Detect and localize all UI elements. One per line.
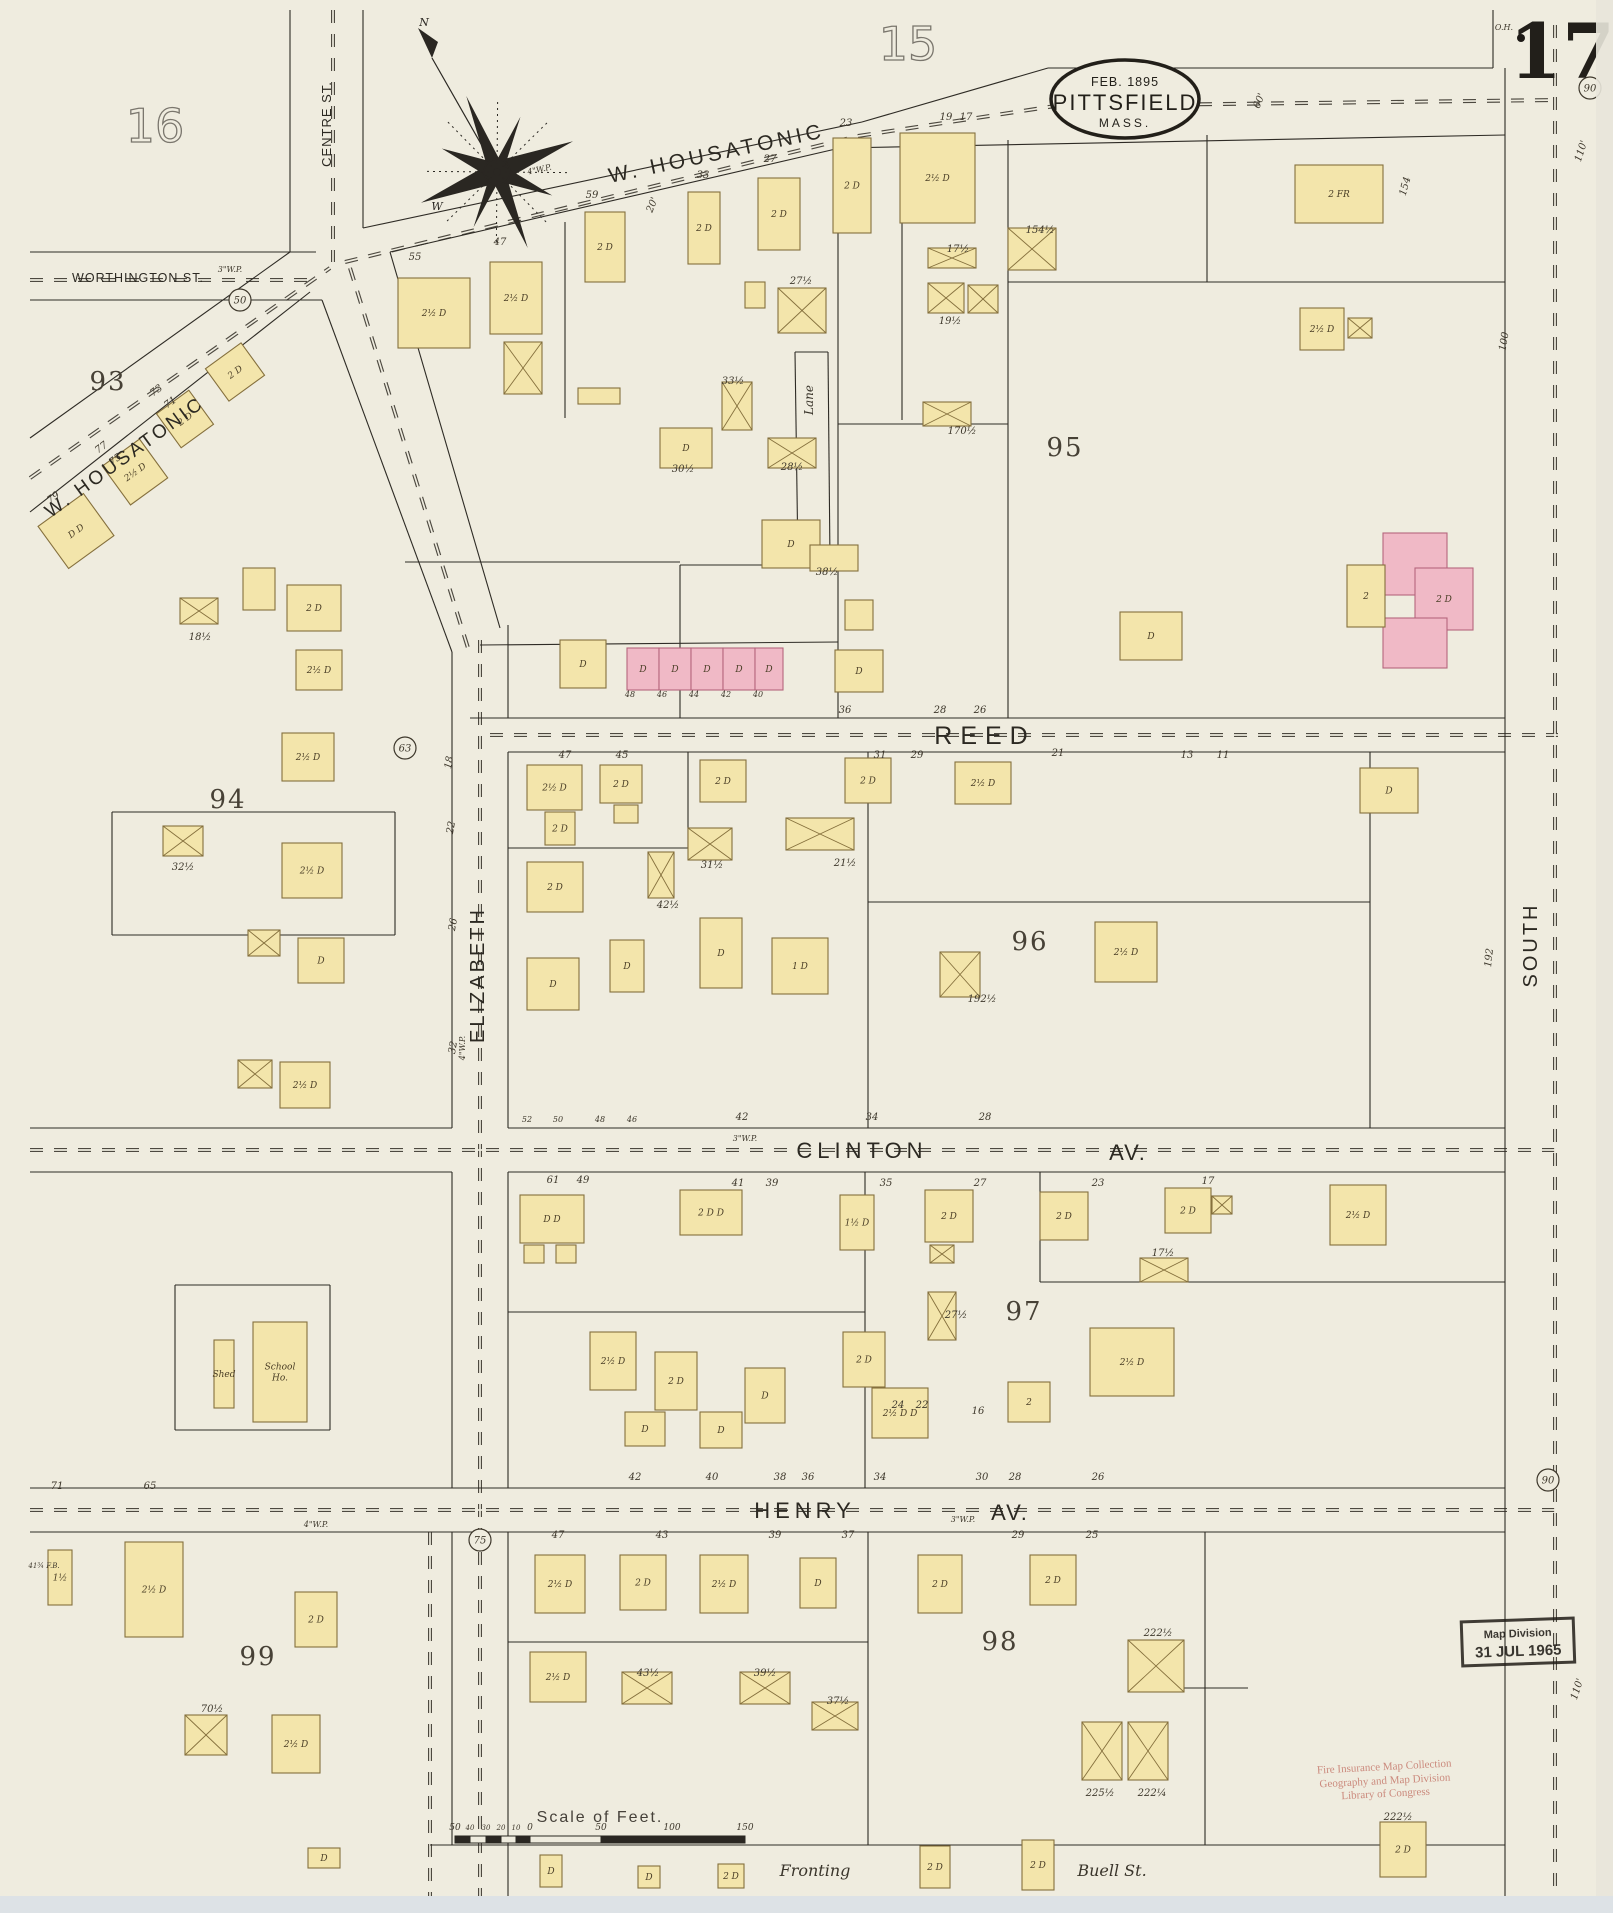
block-numbers-layer: 93 94 95 96 97 98 99	[89, 367, 1083, 1672]
frame-building	[928, 283, 964, 313]
collection-stamp: Fire Insurance Map Collection Geography …	[1317, 1757, 1454, 1803]
building-label: 2½ D	[283, 1739, 309, 1750]
frame-building: 2½ D	[490, 262, 542, 334]
scale-segment	[455, 1836, 470, 1843]
building-label: 2½ D	[141, 1585, 167, 1596]
map-annotation: 19	[940, 112, 953, 123]
frame-building	[1128, 1722, 1168, 1780]
frame-building	[845, 600, 873, 630]
frame-building: D	[308, 1848, 340, 1868]
street-label-henry: HENRY	[754, 1498, 856, 1523]
brick-building	[1383, 618, 1447, 668]
lot-line	[828, 352, 830, 562]
frame-building	[1212, 1196, 1232, 1214]
building-label: 2 D	[305, 604, 322, 614]
stamps-layer: Map Division 31 JUL 1965 Fire Insurance …	[1317, 1618, 1575, 1803]
building-label: 2½ D	[541, 783, 567, 794]
building-label: 2½ D	[970, 778, 996, 789]
street-label-clinton-av: AV.	[1109, 1140, 1147, 1165]
library-date-stamp: Map Division 31 JUL 1965	[1461, 1618, 1574, 1666]
building-label: D	[546, 1867, 554, 1877]
building-label: 2 D	[307, 1616, 324, 1626]
map-annotation: 22	[915, 1400, 929, 1411]
map-annotation: 50	[553, 1115, 563, 1124]
building-label: 2 D	[1055, 1212, 1072, 1222]
frame-building: D	[638, 1866, 660, 1888]
frame-building: 2	[1347, 565, 1385, 627]
frame-building: 2½ D	[1095, 922, 1157, 982]
frame-building: 2 D	[585, 212, 625, 282]
map-annotation: 29	[1011, 1530, 1025, 1541]
frame-building: D	[700, 918, 742, 988]
frame-building: Shed	[212, 1340, 235, 1408]
scale-tick-label: 40	[465, 1824, 475, 1832]
building-label: 2½ D	[924, 173, 950, 184]
street-label-centre: CENTRE ST.	[319, 81, 334, 167]
scan-edge-bottom	[0, 1896, 1613, 1913]
frame-building	[930, 1245, 954, 1263]
scale-bar-ticks: 5040302010050100150	[449, 1823, 754, 1833]
map-annotation: 40	[752, 690, 763, 699]
building-label: 2 D	[667, 1377, 684, 1387]
frame-building: 2 D	[843, 1332, 885, 1387]
building-label: D	[764, 665, 772, 675]
building-label: 2	[1025, 1398, 1032, 1408]
map-annotation: 42	[735, 1112, 749, 1123]
frame-building	[163, 826, 203, 856]
scale-tick-label: 0	[527, 1823, 533, 1833]
frame-building: 1½ D	[840, 1195, 874, 1250]
map-annotation: 65	[144, 1481, 157, 1492]
map-annotation: 4"W.P.	[303, 1520, 328, 1529]
map-annotation: 32½	[172, 862, 194, 873]
frame-building: D	[835, 650, 883, 692]
frame-building: D	[610, 940, 644, 992]
map-annotation: 31	[874, 750, 887, 761]
building-label: 2 D	[596, 243, 613, 253]
map-annotation: 28	[933, 705, 947, 716]
frame-building: 2½ D	[1090, 1328, 1174, 1396]
map-annotation: 31½	[701, 860, 723, 871]
map-annotation: 42	[628, 1472, 642, 1483]
building-label: 2½ D	[295, 752, 321, 763]
map-annotation: 28	[1008, 1472, 1022, 1483]
map-annotation: 33½	[722, 376, 744, 387]
frame-building: 2 D	[688, 192, 720, 264]
title-city: PITTSFIELD	[1053, 90, 1198, 115]
scale-segment	[501, 1836, 516, 1843]
map-annotation: 110'	[1573, 139, 1590, 163]
map-annotation: 28½	[780, 462, 803, 473]
map-annotation: 17½	[947, 244, 969, 255]
frame-building: D	[1120, 612, 1182, 660]
scan-edge-right	[1596, 0, 1613, 1913]
building-label: 2 D	[1179, 1207, 1196, 1217]
map-annotation: 40	[705, 1472, 719, 1483]
map-annotation: 25	[1085, 1530, 1099, 1541]
frame-building: 2½ D	[900, 133, 975, 223]
map-annotation: 77	[93, 439, 110, 456]
street-label-elizabeth: ELIZABETH	[467, 907, 489, 1043]
block-number-98: 98	[981, 1627, 1018, 1657]
building-label: D	[760, 1392, 768, 1402]
frame-building	[786, 818, 854, 850]
frame-building: 2½ D	[296, 650, 342, 690]
frame-building: 2½ D	[280, 1062, 330, 1108]
brick-building: D	[691, 648, 723, 690]
building-label: D	[813, 1579, 821, 1589]
building-label: D	[734, 665, 742, 675]
building-label: D	[578, 660, 586, 670]
building-label: 2 D	[1394, 1846, 1411, 1856]
frame-building: D	[625, 1412, 665, 1446]
map-annotation: 41¾ F.B.	[27, 1562, 59, 1570]
scale-tick-label: 150	[736, 1823, 753, 1833]
block-number-95: 95	[1046, 433, 1083, 463]
building-label: 2½ D	[1119, 1357, 1145, 1368]
building-label: 2 D D	[697, 1209, 724, 1219]
map-annotation: 46	[656, 690, 667, 699]
frame-building: 2 D	[527, 862, 583, 912]
lot-lines	[30, 10, 1505, 1913]
frame-building: 2 FR	[1295, 165, 1383, 223]
map-annotation: 154	[1398, 176, 1414, 197]
frame-building: 2 D	[205, 343, 264, 401]
frame-building	[1140, 1258, 1188, 1282]
map-annotation: 192	[1483, 948, 1496, 968]
building-label: 2 D	[843, 182, 860, 192]
scale-tick-label: 100	[663, 1823, 680, 1833]
building-label: 2 D	[859, 777, 876, 787]
building-label: 2	[1362, 592, 1369, 602]
map-annotation: 24	[891, 1400, 905, 1411]
building-label: D	[316, 957, 324, 967]
frame-building: 2½ D	[527, 765, 582, 810]
block-number-99: 99	[239, 1642, 276, 1672]
map-annotation: 27½	[944, 1310, 967, 1321]
map-annotation: 43½	[636, 1668, 659, 1679]
map-annotation: 27½	[789, 276, 812, 287]
street-label-buell: Buell St.	[1076, 1861, 1146, 1880]
map-annotation: 30½	[672, 464, 694, 475]
scale-segment	[486, 1836, 501, 1843]
map-annotation: 3"W.P.	[218, 265, 242, 274]
building-label: 2½ D	[421, 308, 447, 319]
map-annotation: 44	[688, 690, 699, 699]
map-annotation: 43	[655, 1530, 669, 1541]
frame-building: 2 D	[700, 760, 746, 802]
building-label: 2½ D	[1345, 1210, 1371, 1221]
map-annotation: 42	[720, 690, 731, 699]
map-annotation: 170½	[948, 426, 977, 437]
map-annotation: 30	[976, 1472, 989, 1483]
map-annotation: 28	[978, 1112, 992, 1123]
building-label: 2 D	[695, 224, 712, 234]
frame-building: 2½ D	[272, 1715, 320, 1773]
compass-west-label: W	[431, 200, 444, 213]
building-label: 2 D	[634, 1579, 651, 1589]
brick-building: D	[723, 648, 755, 690]
map-annotation: 46	[626, 1115, 637, 1124]
buildings-layer: 2½ D2½ D2 DD2 D2 D2 DD2½ D2 FR2½ D2 D2DD…	[38, 133, 1473, 1890]
building-label: 1½ D	[845, 1218, 870, 1229]
frame-building	[1348, 318, 1372, 338]
street-label-clinton: CLINTON	[796, 1138, 927, 1163]
map-annotation: 18	[443, 755, 456, 769]
frame-building: 2 D	[655, 1352, 697, 1410]
map-annotation: 21	[1051, 748, 1065, 759]
scale-segment	[470, 1836, 486, 1843]
frame-building	[524, 1245, 544, 1263]
frame-building: 2½ D	[535, 1555, 585, 1613]
map-annotation: 21½	[833, 858, 856, 869]
map-annotation: 34	[874, 1472, 887, 1483]
building-label: D	[644, 1873, 652, 1883]
frame-building	[968, 285, 998, 313]
block-number-93: 93	[89, 367, 126, 397]
building-label: 2½ D	[600, 1356, 626, 1367]
street-width-disc: 75	[469, 1529, 491, 1551]
map-annotation: 38	[774, 1472, 787, 1483]
frame-building: 2 D	[295, 1592, 337, 1647]
map-annotation: 22	[445, 820, 458, 835]
building-label: D	[638, 665, 646, 675]
map-annotation: 60'	[1252, 92, 1268, 110]
frame-building: 2 D	[545, 812, 575, 845]
frame-building: 2 D D	[680, 1190, 742, 1235]
brick-building: D	[627, 648, 659, 690]
frame-building: 2½ D	[530, 1652, 586, 1702]
frame-building: 1½	[48, 1550, 72, 1605]
frame-building: 2 D	[620, 1555, 666, 1610]
map-annotation: 154½	[1026, 225, 1055, 236]
scale-tick-label: 50	[595, 1823, 607, 1833]
frame-building: D	[560, 640, 606, 688]
title-oval: FEB. 1895 PITTSFIELD MASS.	[1051, 60, 1199, 138]
map-annotation: 39½	[754, 1668, 776, 1679]
street-width-disc: 90	[1537, 1469, 1559, 1491]
frame-building: 2 D	[287, 585, 341, 631]
map-annotation: 27	[763, 154, 777, 165]
frame-building	[1128, 1640, 1184, 1692]
map-annotation: 41	[731, 1178, 745, 1189]
lot-line	[480, 642, 838, 645]
sheet-numbers-layer: 15 16 17	[126, 7, 1613, 153]
map-annotation: 34	[866, 1112, 879, 1123]
scale-segment	[601, 1836, 672, 1843]
lot-line	[862, 68, 1048, 122]
map-canvas: 2½ D2½ D2 DD2 D2 D2 DD2½ D2 FR2½ D2 D2DD…	[0, 0, 1613, 1913]
building-label: 2½ D	[545, 1672, 571, 1683]
sanborn-map-sheet: 2½ D2½ D2 DD2 D2 D2 DD2½ D2 FR2½ D2 D2DD…	[0, 0, 1613, 1913]
map-annotation: 23	[1091, 1178, 1105, 1189]
street-centerline-core	[858, 106, 1055, 136]
map-annotation: 18½	[189, 632, 211, 643]
label-fronting: Fronting	[779, 1861, 851, 1880]
building-label: 2½ D	[547, 1579, 573, 1590]
building-label: D	[702, 665, 710, 675]
map-annotation: 37	[842, 1530, 855, 1541]
building-label: 2½ D	[1113, 947, 1139, 958]
map-annotation: 16	[972, 1406, 985, 1417]
building-label: 2 D	[722, 1872, 739, 1882]
map-annotation: 42½	[656, 900, 679, 911]
frame-building	[722, 382, 752, 430]
building-label: 2 D	[714, 777, 731, 787]
map-annotation: 222½	[1143, 1628, 1173, 1639]
map-annotation: 222½	[1383, 1812, 1413, 1823]
frame-building: 2½ D	[700, 1555, 748, 1613]
frame-building	[923, 402, 971, 426]
adjacent-sheet-number-16: 16	[126, 99, 185, 153]
frame-building: 2½ D D	[872, 1388, 928, 1438]
map-annotation: 37½	[827, 1696, 849, 1707]
building-label: 2 D	[940, 1212, 957, 1222]
compass-star	[387, 62, 608, 283]
svg-text:50: 50	[234, 296, 247, 307]
building-label: 2 D	[1435, 595, 1452, 605]
frame-building: D	[1360, 768, 1418, 813]
frame-building: 2 D	[1030, 1555, 1076, 1605]
map-annotation: 23	[839, 118, 853, 129]
map-annotation: 45	[615, 750, 629, 761]
compass-north-label: N	[418, 16, 429, 29]
building-label: 2 D	[1029, 1861, 1046, 1871]
frame-building: 2 D	[1380, 1822, 1426, 1877]
building-label: D	[622, 962, 630, 972]
frame-building: D	[298, 938, 344, 983]
map-annotation: 19½	[939, 316, 961, 327]
scale-segment	[530, 1836, 601, 1843]
scale-tick-label: 30	[482, 1824, 491, 1832]
map-annotation: 38½	[816, 567, 838, 578]
map-annotation: 33	[697, 170, 710, 181]
building-label: D	[1146, 632, 1154, 642]
building-label: 2 D	[546, 883, 563, 893]
svg-text:90: 90	[1542, 1476, 1555, 1487]
frame-building	[185, 1715, 227, 1755]
building-label: 1½	[53, 1573, 67, 1584]
building-label: D	[716, 1426, 724, 1436]
frame-building	[504, 342, 542, 394]
building-label: 2 D	[931, 1580, 948, 1590]
frame-building: D	[800, 1558, 836, 1608]
building-label: D	[786, 540, 794, 550]
frame-building	[1082, 1722, 1122, 1780]
map-annotation: 55	[409, 252, 422, 263]
frame-building: 2½ D	[1330, 1185, 1386, 1245]
map-annotation: 17	[960, 112, 973, 123]
scale-segment	[672, 1836, 745, 1843]
building-label: 2½ D	[306, 665, 332, 676]
building-label: 2½ D	[711, 1579, 737, 1590]
frame-building	[614, 805, 638, 823]
map-annotation: 48	[624, 690, 635, 699]
frame-building: D	[745, 1368, 785, 1423]
frame-building: 2 D	[718, 1864, 744, 1888]
building-label: 2 D	[551, 825, 568, 835]
adjacent-sheet-number-15: 15	[879, 17, 938, 71]
building-label: D	[548, 980, 556, 990]
building-label: 2 D	[926, 1863, 943, 1873]
map-annotation: 36	[839, 705, 852, 716]
map-annotation: 39	[769, 1530, 782, 1541]
building-label: 2½ D	[503, 293, 529, 304]
map-annotation: 47	[493, 237, 507, 248]
frame-building: 2 D	[833, 138, 871, 233]
frame-building: D	[540, 1855, 562, 1887]
scale-segment	[516, 1836, 530, 1843]
map-annotation: 61	[547, 1175, 560, 1186]
building-label: 2 D	[770, 210, 787, 220]
street-label-henry-av: AV.	[991, 1500, 1029, 1525]
street-label-worthington: WORTHINGTON ST.	[72, 271, 204, 285]
map-annotation: 20'	[644, 196, 660, 215]
map-annotation: 71	[51, 1481, 64, 1492]
map-annotation: 100	[1497, 331, 1511, 352]
street-width-disc: 63	[394, 737, 416, 759]
map-annotation: 49	[576, 1175, 590, 1186]
building-label: D D	[542, 1215, 560, 1225]
map-annotation: 36	[802, 1472, 815, 1483]
block-number-96: 96	[1011, 927, 1048, 957]
frame-building: D D	[520, 1195, 584, 1243]
frame-building	[688, 828, 732, 860]
building-label: D	[716, 949, 724, 959]
map-annotation: 52	[522, 1115, 532, 1124]
street-label-lane: Lane	[802, 385, 816, 416]
map-annotation: 48	[594, 1115, 605, 1124]
building-label: D	[319, 1854, 327, 1864]
frame-building: 2½ D	[282, 733, 334, 781]
street-width-disc: 50	[229, 289, 251, 311]
map-annotation: 29	[910, 750, 924, 761]
date-stamp-line1: Map Division	[1484, 1627, 1553, 1641]
scale-tick-label: 50	[449, 1823, 461, 1833]
map-annotation: 39	[766, 1178, 779, 1189]
frame-building: 2 D	[1165, 1188, 1211, 1233]
map-annotation: 17	[1202, 1176, 1215, 1187]
building-label: D	[640, 1425, 648, 1435]
building-label: 2½ D	[1309, 324, 1335, 335]
map-annotation: 11	[1217, 750, 1230, 761]
frame-building: 2 D	[758, 178, 800, 250]
map-annotation: 47	[551, 1530, 565, 1541]
svg-text:75: 75	[474, 1536, 487, 1547]
scale-bar: Scale of Feet. 5040302010050100150	[449, 1809, 754, 1843]
frame-building	[556, 1245, 576, 1263]
title-date: FEB. 1895	[1091, 75, 1159, 89]
brick-building: D	[755, 648, 783, 690]
building-label: 1 D	[792, 962, 808, 972]
map-annotation: 4"W.P.	[458, 1036, 467, 1061]
frame-building: 2½ D	[125, 1542, 183, 1637]
frame-building	[238, 1060, 272, 1088]
frame-building: 1 D	[772, 938, 828, 994]
map-annotation: 222¼	[1137, 1788, 1167, 1799]
frame-building: 2 D	[925, 1190, 973, 1242]
svg-text:63: 63	[399, 744, 412, 755]
map-annotation: 225½	[1085, 1788, 1115, 1799]
building-label: 2½ D	[292, 1080, 318, 1091]
frame-building	[248, 930, 280, 956]
brick-building: D	[659, 648, 691, 690]
building-label: D	[681, 444, 689, 454]
building-label: 2 D	[855, 1356, 872, 1366]
map-annotation: 35	[880, 1178, 893, 1189]
frame-building: SchoolHo.	[253, 1322, 307, 1422]
map-annotation: 26	[1091, 1472, 1105, 1483]
